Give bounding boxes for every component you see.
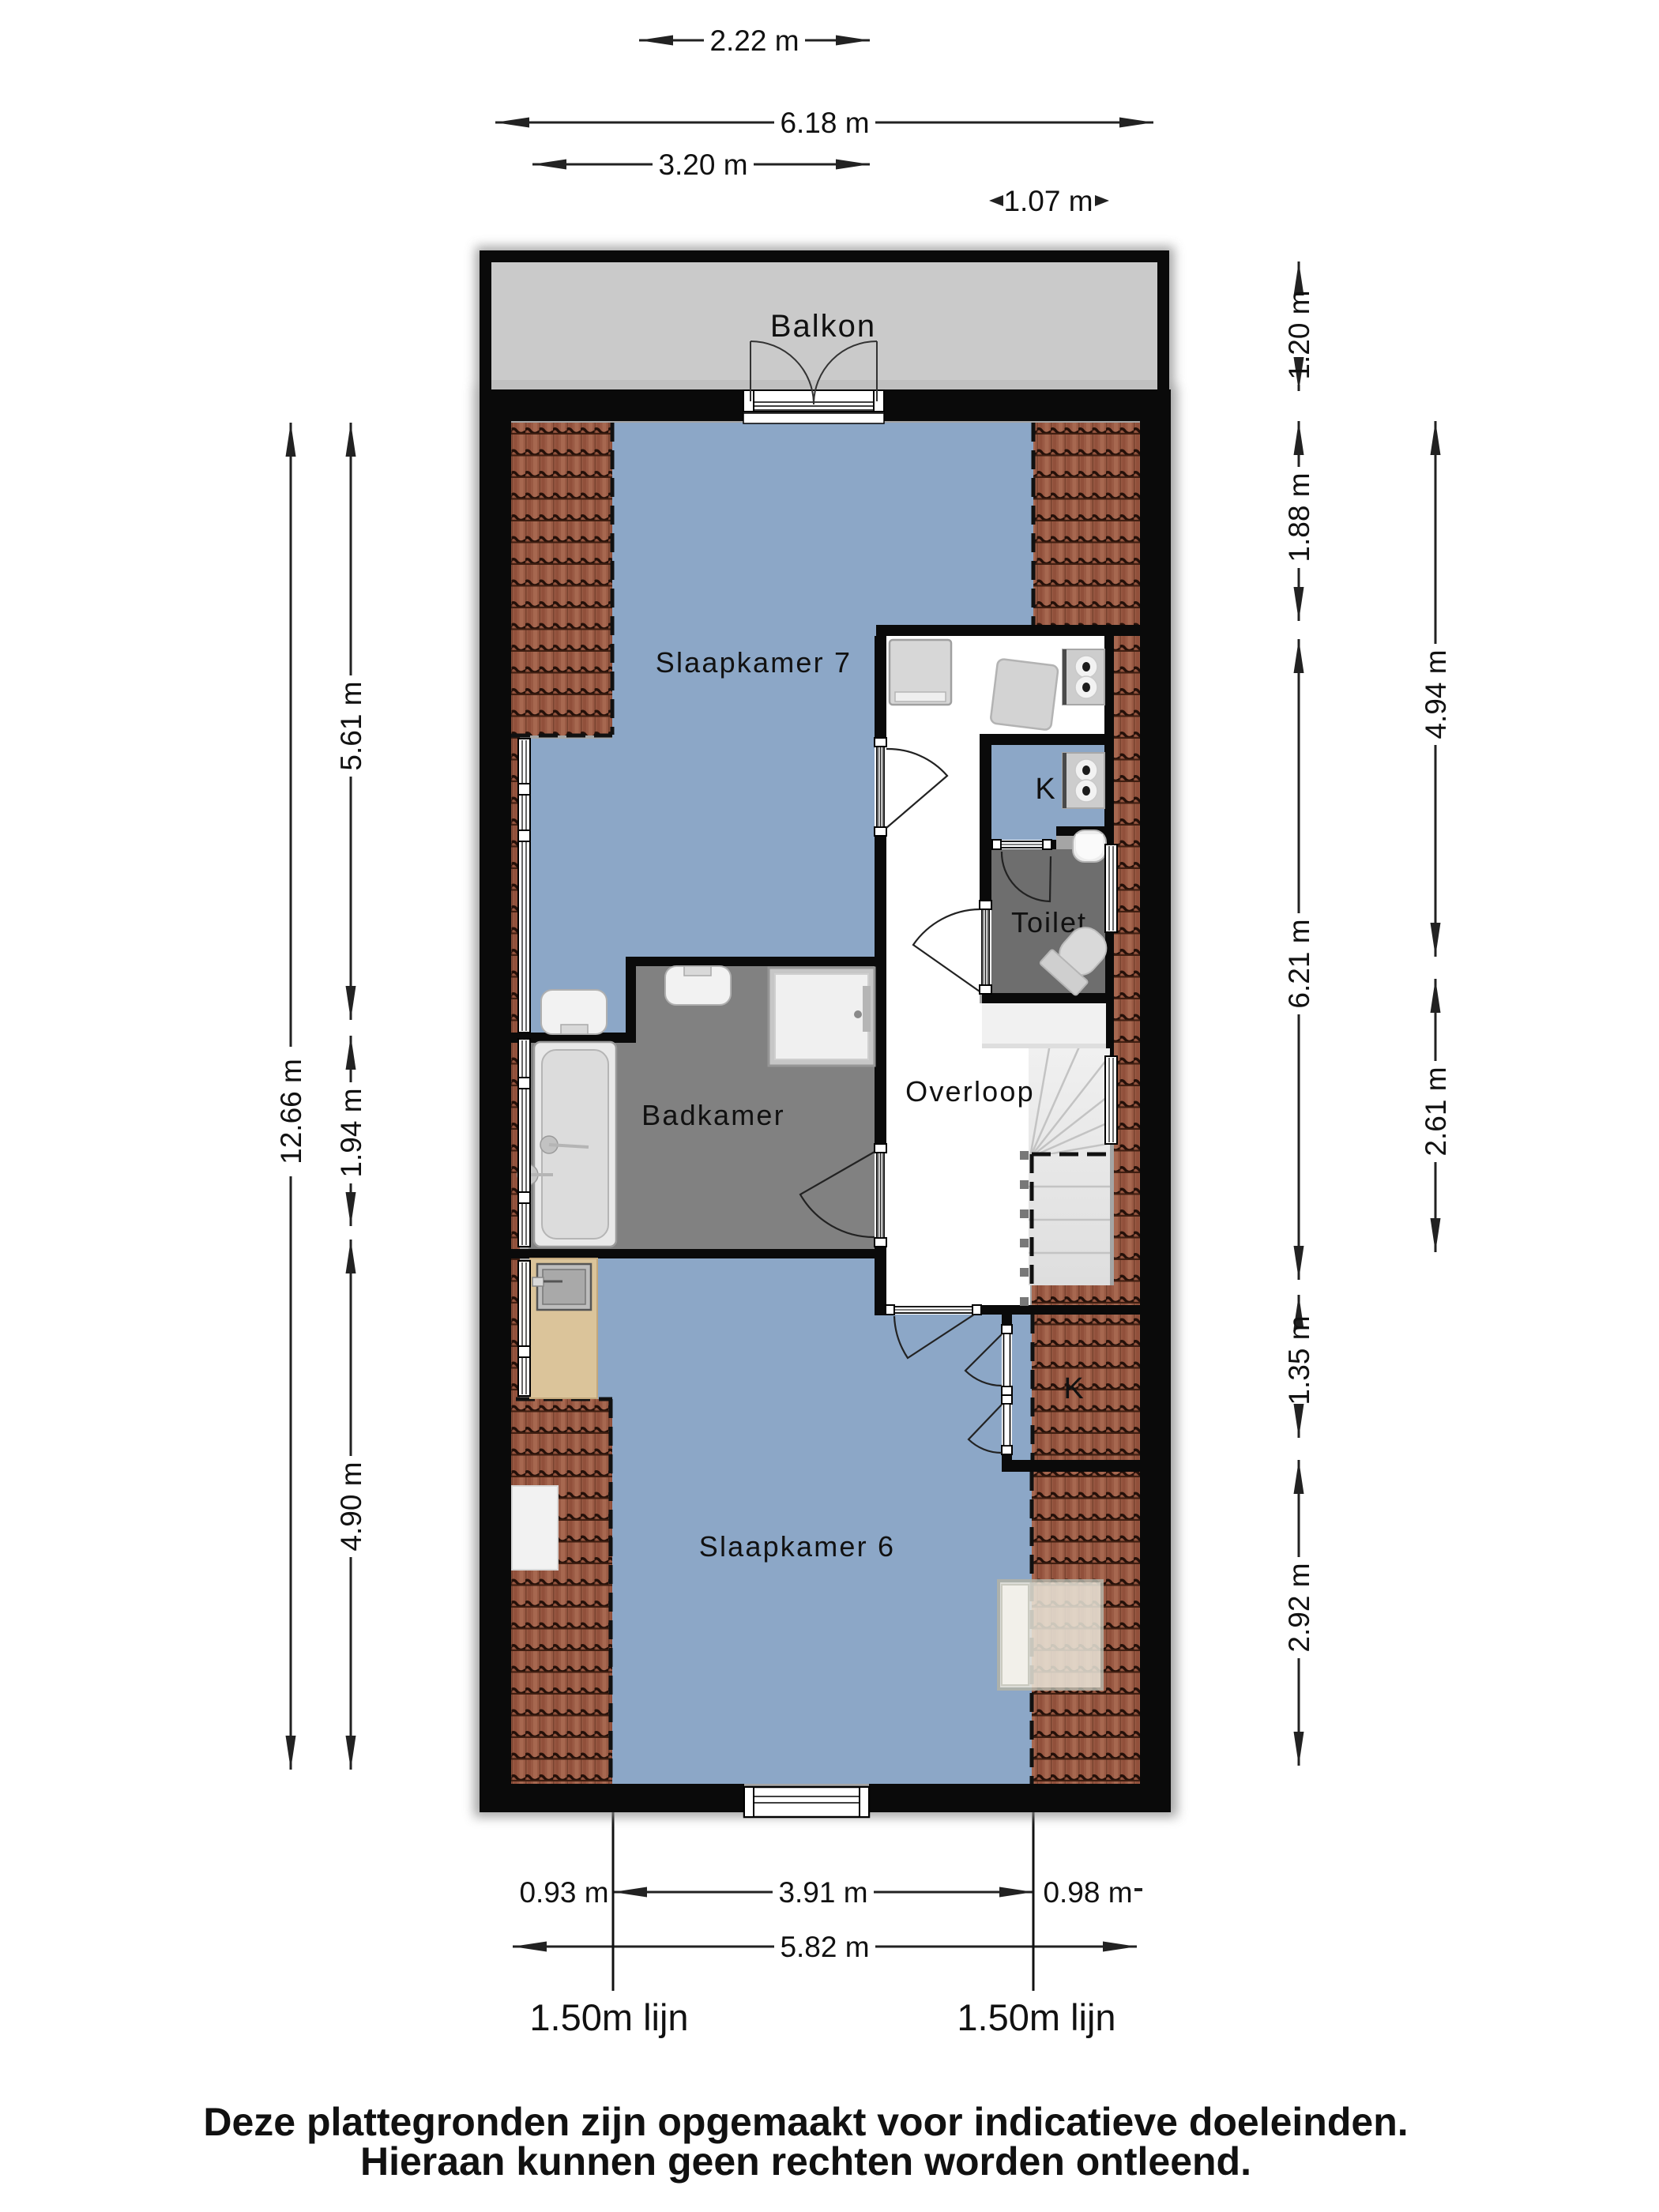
svg-text:2.22 m: 2.22 m [709, 24, 799, 57]
svg-text:Slaapkamer 6: Slaapkamer 6 [699, 1530, 896, 1563]
svg-text:1.94 m: 1.94 m [335, 1088, 367, 1177]
svg-text:0.98 m: 0.98 m [1043, 1876, 1132, 1909]
svg-text:5.82 m: 5.82 m [780, 1931, 869, 1963]
svg-text:2.92 m: 2.92 m [1283, 1563, 1315, 1652]
svg-text:2.61 m: 2.61 m [1420, 1066, 1452, 1156]
svg-text:1.20 m: 1.20 m [1283, 290, 1315, 379]
svg-text:12.66 m: 12.66 m [275, 1059, 307, 1164]
svg-text:Deze plattegronden zijn opgema: Deze plattegronden zijn opgemaakt voor i… [203, 2100, 1408, 2144]
svg-text:K: K [1063, 1372, 1085, 1405]
svg-text:6.18 m: 6.18 m [780, 107, 869, 139]
svg-text:Hieraan kunnen geen rechten wo: Hieraan kunnen geen rechten worden ontle… [360, 2139, 1251, 2184]
svg-text:Badkamer: Badkamer [641, 1099, 785, 1131]
svg-text:5.61 m: 5.61 m [335, 681, 367, 770]
svg-text:1.88 m: 1.88 m [1283, 472, 1315, 562]
svg-text:3.91 m: 3.91 m [778, 1876, 867, 1909]
svg-text:0.93 m: 0.93 m [519, 1876, 608, 1909]
svg-text:1.07 m: 1.07 m [1003, 185, 1093, 217]
svg-text:Balkon: Balkon [770, 309, 876, 344]
svg-text:K: K [1035, 773, 1056, 806]
svg-text:1.50m lijn: 1.50m lijn [957, 1996, 1115, 2038]
svg-text:1.35 m: 1.35 m [1283, 1315, 1315, 1405]
svg-text:1.50m lijn: 1.50m lijn [529, 1996, 688, 2038]
svg-text:6.21 m: 6.21 m [1283, 919, 1315, 1008]
svg-text:Overloop: Overloop [905, 1075, 1035, 1108]
svg-text:Slaapkamer 7: Slaapkamer 7 [656, 646, 852, 679]
svg-text:3.20 m: 3.20 m [658, 149, 747, 181]
svg-text:4.90 m: 4.90 m [335, 1461, 367, 1551]
svg-text:4.94 m: 4.94 m [1420, 649, 1452, 739]
